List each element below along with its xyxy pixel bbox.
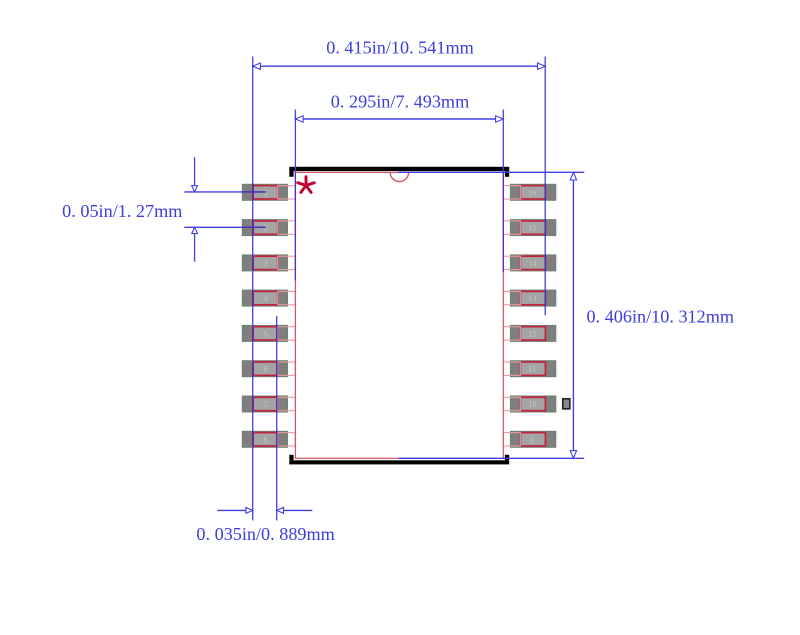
svg-text:10: 10 — [529, 400, 537, 409]
svg-text:2: 2 — [264, 224, 268, 233]
svg-text:0. 035in/0. 889mm: 0. 035in/0. 889mm — [196, 524, 334, 544]
svg-text:5: 5 — [264, 329, 268, 338]
svg-text:9: 9 — [531, 435, 535, 444]
svg-text:12: 12 — [529, 329, 537, 338]
svg-text:4: 4 — [264, 294, 268, 303]
svg-text:7: 7 — [264, 400, 268, 409]
svg-text:15: 15 — [529, 224, 537, 233]
svg-text:11: 11 — [529, 365, 537, 374]
svg-text:14: 14 — [529, 259, 537, 268]
svg-text:6: 6 — [264, 365, 268, 374]
svg-text:0. 05in/1. 27mm: 0. 05in/1. 27mm — [62, 201, 182, 221]
svg-text:3: 3 — [264, 259, 268, 268]
svg-text:8: 8 — [264, 435, 268, 444]
svg-text:1: 1 — [264, 188, 268, 197]
svg-text:13: 13 — [529, 294, 537, 303]
svg-text:0. 406in/10. 312mm: 0. 406in/10. 312mm — [587, 307, 735, 327]
svg-text:16: 16 — [529, 188, 537, 197]
svg-text:0. 295in/7. 493mm: 0. 295in/7. 493mm — [331, 92, 469, 112]
svg-text:0. 415in/10. 541mm: 0. 415in/10. 541mm — [326, 38, 474, 58]
